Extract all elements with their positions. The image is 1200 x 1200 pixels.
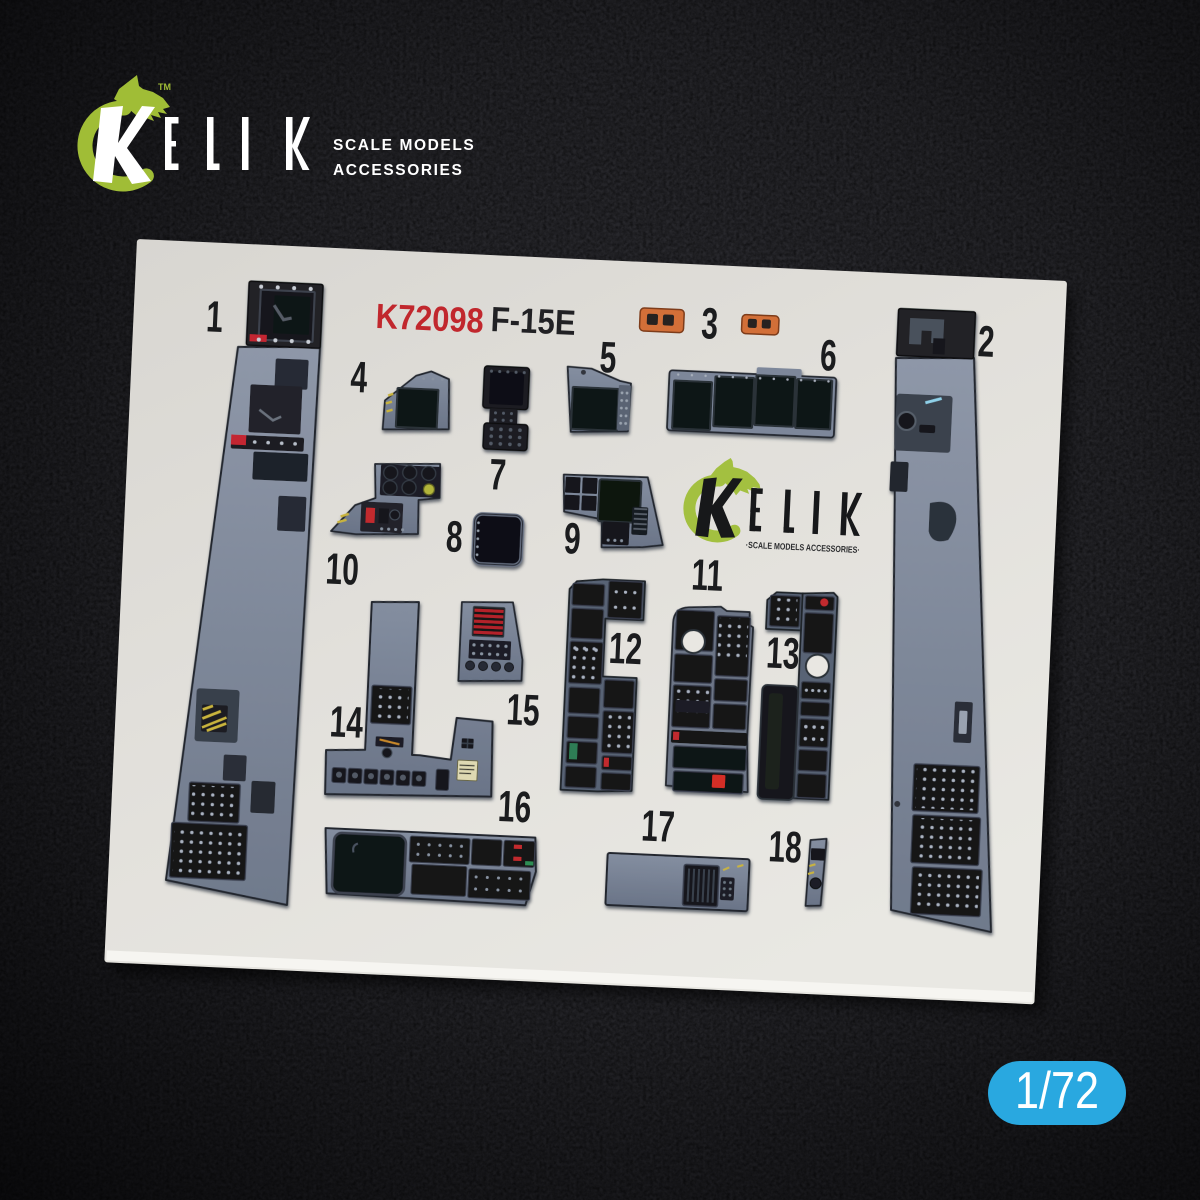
svg-text:1: 1 (205, 291, 224, 341)
svg-text:3: 3 (700, 298, 719, 348)
svg-text:15: 15 (505, 684, 540, 735)
svg-text:TM: TM (158, 82, 171, 92)
svg-text:12: 12 (608, 623, 643, 674)
svg-text:ACCESSORIES: ACCESSORIES (333, 162, 463, 179)
svg-text:9: 9 (563, 513, 582, 563)
svg-text:18: 18 (767, 821, 802, 872)
svg-text:8: 8 (445, 512, 464, 562)
svg-text:K72098: K72098 (375, 297, 485, 341)
svg-text:4: 4 (350, 352, 369, 402)
svg-text:SCALE MODELS: SCALE MODELS (333, 137, 475, 154)
svg-text:6: 6 (819, 330, 838, 380)
svg-text:2: 2 (977, 316, 996, 366)
svg-text:13: 13 (765, 628, 800, 679)
svg-text:1/72: 1/72 (1015, 1062, 1099, 1120)
svg-text:11: 11 (690, 550, 724, 600)
svg-text:17: 17 (640, 801, 675, 852)
svg-text:16: 16 (497, 781, 532, 832)
svg-text:7: 7 (488, 449, 507, 499)
svg-text:10: 10 (325, 544, 360, 595)
svg-text:14: 14 (329, 696, 365, 747)
svg-text:F-15E: F-15E (490, 300, 577, 343)
